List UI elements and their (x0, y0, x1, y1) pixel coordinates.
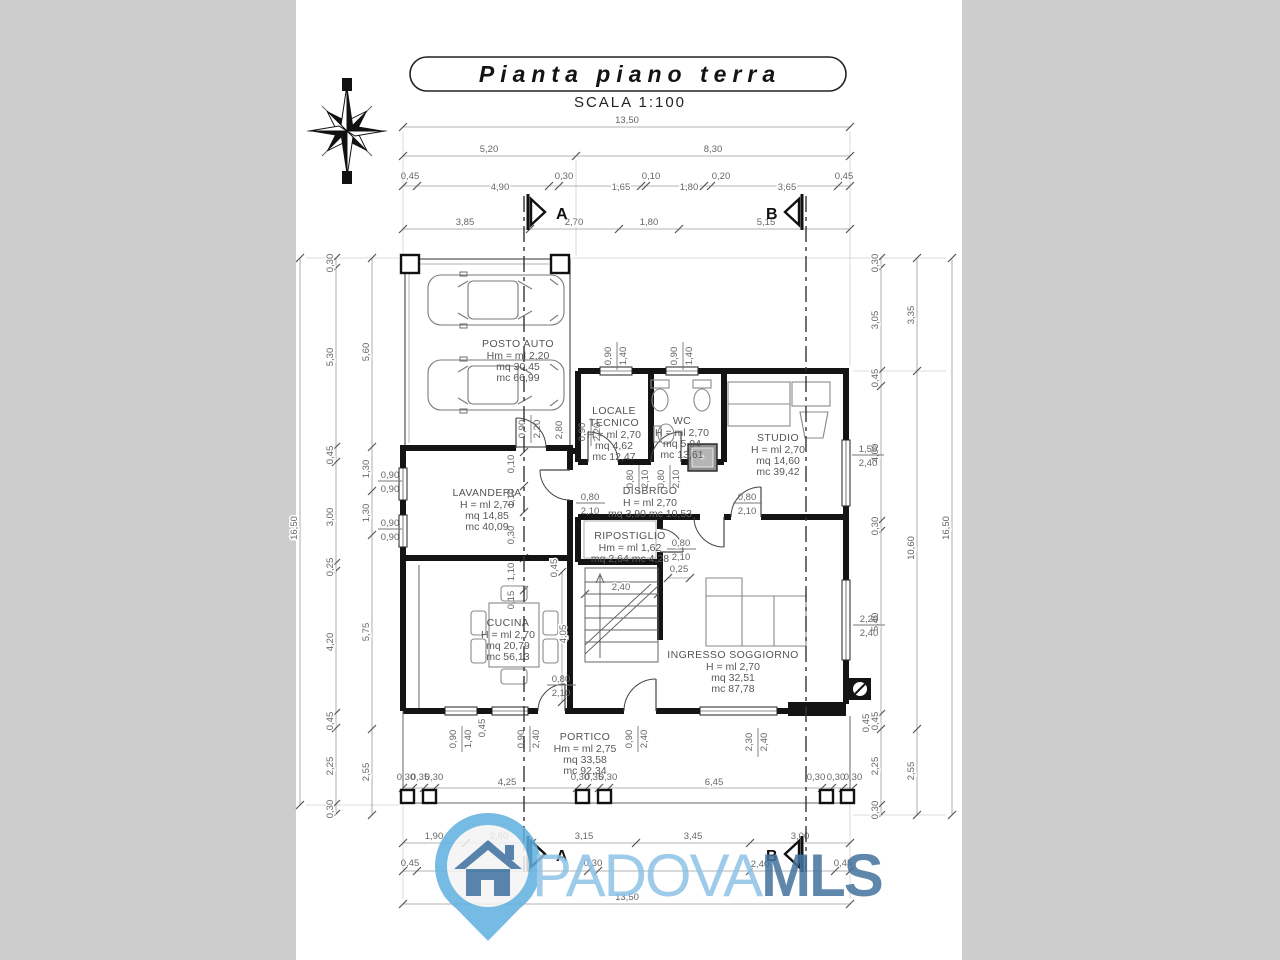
dim-label: 3,15 (575, 831, 594, 842)
dim-label: 1,90 (425, 831, 444, 842)
dim-label: 0,45 (861, 714, 872, 733)
watermark-text: PADOVAMLS (532, 842, 882, 909)
dim-label: 2,30 (744, 733, 755, 752)
dim-label: 0,80 (625, 470, 636, 489)
portico-pillar (423, 790, 436, 803)
dim-label: 0,90 (381, 470, 400, 481)
dim-label: 0,45 (401, 858, 420, 869)
dim-label: 1,40 (684, 347, 695, 366)
dim-label: 0,80 (738, 492, 757, 503)
room-stat: mq 2,64 mc 4,28 (591, 553, 669, 565)
dim-label: 0,90 (448, 730, 459, 749)
wall-corner-block (788, 702, 846, 716)
dim-label: 2,55 (906, 762, 917, 781)
dim-label: 0,90 (516, 730, 527, 749)
portico-pillar (841, 790, 854, 803)
dim-label: 4,20 (325, 633, 336, 652)
dim-label: 0,30 (844, 772, 863, 783)
room-label: RIPOSTIGLIO (594, 530, 666, 542)
dim-label: 2,10 (738, 506, 757, 517)
dim-label: 3,00 (325, 508, 336, 527)
dim-label: 0,30 (807, 772, 826, 783)
room-stat: mc 39,42 (756, 466, 799, 478)
room-stat: mc 92,34 (563, 765, 606, 777)
dim-label: 0,80 (656, 470, 667, 489)
dim-label: 4,25 (498, 777, 517, 788)
garage-pillar (401, 255, 419, 273)
dim-label: 0,30 (506, 526, 517, 545)
dim-label: 5,20 (480, 144, 499, 155)
dim-label: 0,80 (552, 674, 571, 685)
compass-north-cap (342, 78, 352, 91)
dim-label: 2,20 (860, 614, 879, 625)
dim-label: 0,90 (381, 484, 400, 495)
dim-label: 2,20 (532, 420, 543, 439)
dim-label: 10,60 (906, 536, 917, 560)
dim-label: 1,80 (640, 217, 659, 228)
dim-label: 16,50 (289, 516, 300, 540)
dim-label: 2,40 (759, 733, 770, 752)
dim-label: 0,90 (603, 347, 614, 366)
dim-label: 2,10 (671, 470, 682, 489)
dim-label: 0,45 (477, 719, 488, 738)
dim-label: 2,10 (581, 506, 600, 517)
room-stat: mq 3,90 mc 10,53 (608, 508, 692, 520)
room-label: POSTO AUTO (482, 338, 554, 350)
dim-label: 0,25 (325, 558, 336, 577)
section-a-label: A (556, 206, 568, 223)
dim-label: 5,75 (361, 623, 372, 642)
floor-plan-page: Pianta piano terra SCALA 1:100 (0, 0, 1280, 960)
portico-pillar (401, 790, 414, 803)
scale-label: SCALA 1:100 (574, 94, 686, 111)
dim-label: 0,80 (672, 538, 691, 549)
floor-plan-drawing: Pianta piano terra SCALA 1:100 (0, 0, 1280, 960)
room-label: CUCINA (487, 617, 530, 629)
room-label: STUDIO (757, 432, 799, 444)
room-stat: mc 13,61 (660, 449, 703, 461)
dim-label: 2,80 (554, 421, 565, 440)
dim-label: 0,30 (325, 800, 336, 819)
room-label: PORTICO (560, 731, 610, 743)
dim-label: 1,30 (361, 504, 372, 523)
dim-label: 1,80 (680, 182, 699, 193)
dim-label: 0,45 (870, 369, 881, 388)
room-stat: mc 12,47 (592, 451, 635, 463)
dim-label: 8,30 (704, 144, 723, 155)
portico-pillar (576, 790, 589, 803)
dim-label: 1,65 (612, 182, 631, 193)
room-stat: mc 40,09 (465, 521, 508, 533)
dim-label: 2,20 (592, 423, 603, 442)
dim-label: 1,40 (463, 730, 474, 749)
dim-label: 5,60 (361, 343, 372, 362)
dim-label: 2,10 (672, 552, 691, 563)
dim-label: 2,40 (860, 628, 879, 639)
dim-label: 0,30 (870, 517, 881, 536)
dim-label: 0,45 (835, 171, 854, 182)
garage-pillar (551, 255, 569, 273)
dim-label: 4,90 (491, 182, 510, 193)
dim-label: 0,90 (381, 518, 400, 529)
dim-label: 13,50 (615, 115, 639, 126)
watermark-brand: PADOVA (532, 842, 763, 909)
dim-label: 0,30 (555, 171, 574, 182)
room-stat: mc 87,78 (711, 683, 754, 695)
room-label: INGRESSO SOGGIORNO (667, 649, 798, 661)
dim-label: 2,40 (639, 730, 650, 749)
dim-label: 0,90 (624, 730, 635, 749)
dim-label: 2,40 (531, 730, 542, 749)
room-label: WC (673, 415, 691, 427)
room-stat: mc 56,13 (486, 651, 529, 663)
dim-label: 1,10 (506, 563, 517, 582)
dim-label: 0,20 (712, 171, 731, 182)
compass-south-cap (342, 171, 352, 184)
dim-label: 1,50 (859, 444, 878, 455)
dim-label: 0,90 (669, 347, 680, 366)
dim-label: 2,40 (859, 458, 878, 469)
dim-label: 0,30 (325, 254, 336, 273)
page-title: Pianta piano terra (479, 61, 781, 87)
dim-label: 2,25 (325, 757, 336, 776)
dim-label: 3,05 (870, 311, 881, 330)
dim-label: 3,45 (684, 831, 703, 842)
dim-label: 1,30 (361, 460, 372, 479)
dim-label: 0,90 (517, 420, 528, 439)
dim-label: 0,25 (670, 564, 689, 575)
dim-label: 3,65 (778, 182, 797, 193)
dim-label: 0,45 (325, 446, 336, 465)
dim-label: 0,10 (642, 171, 661, 182)
section-b-label: B (766, 206, 778, 223)
dim-label: 1,40 (618, 347, 629, 366)
dim-label: 0,90 (577, 423, 588, 442)
dim-label: 0,30 (425, 772, 444, 783)
dim-label: 2,55 (361, 763, 372, 782)
dim-label: 2,10 (640, 470, 651, 489)
dim-label: 2,40 (612, 582, 631, 593)
dim-label: 3,35 (906, 306, 917, 325)
dim-label: 0,45 (401, 171, 420, 182)
dim-label: 0,10 (506, 455, 517, 474)
dim-label: 0,45 (325, 712, 336, 731)
dim-label: 4,05 (558, 625, 569, 644)
dim-label: 0,15 (506, 591, 517, 610)
dim-label: 6,45 (705, 777, 724, 788)
portico-pillar (598, 790, 611, 803)
dim-label: 0,80 (581, 492, 600, 503)
room-stat: mc 66,99 (496, 372, 539, 384)
dim-label: 0,30 (870, 254, 881, 273)
dim-label: 3,85 (456, 217, 475, 228)
dim-label: 2,10 (552, 688, 571, 699)
dim-label: 0,30 (827, 772, 846, 783)
watermark-brand-suffix: MLS (761, 842, 882, 909)
dim-label: 5,30 (325, 348, 336, 367)
dim-label: 16,50 (941, 516, 952, 540)
dim-label: 0,30 (870, 801, 881, 820)
room-label: LOCALE (592, 405, 636, 417)
portico-pillar (820, 790, 833, 803)
dim-label: 2,25 (870, 757, 881, 776)
dim-label: 0,45 (549, 559, 560, 578)
dim-label: 0,90 (381, 532, 400, 543)
flue-icon (849, 678, 871, 700)
dim-label: 1,10 (506, 489, 517, 508)
